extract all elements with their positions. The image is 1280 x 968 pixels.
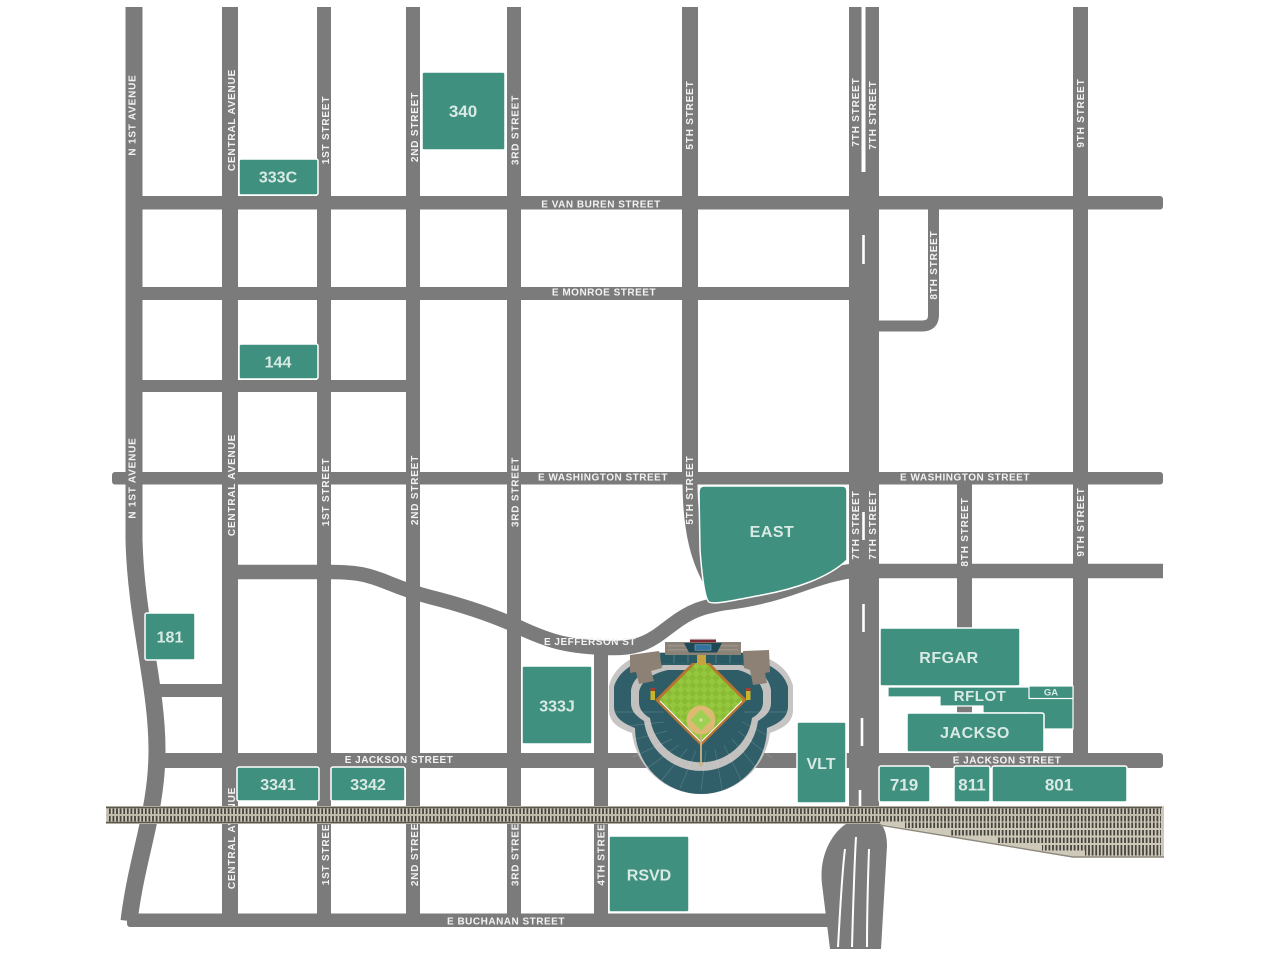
- svg-text:7TH STREET: 7TH STREET: [851, 77, 862, 146]
- svg-text:3RD STREET: 3RD STREET: [511, 95, 522, 165]
- svg-text:340: 340: [449, 102, 477, 121]
- svg-text:7TH STREET: 7TH STREET: [868, 490, 879, 559]
- svg-text:RFGAR: RFGAR: [919, 650, 978, 667]
- svg-text:144: 144: [265, 355, 292, 372]
- svg-text:8TH STREET: 8TH STREET: [960, 497, 971, 566]
- svg-text:E VAN BUREN STREET: E VAN BUREN STREET: [541, 200, 660, 211]
- svg-text:2ND STREET: 2ND STREET: [410, 92, 421, 162]
- svg-text:333J: 333J: [539, 699, 575, 716]
- svg-text:RSVD: RSVD: [627, 868, 671, 885]
- svg-text:2ND STREET: 2ND STREET: [410, 816, 421, 886]
- svg-text:CENTRAL AVENUE: CENTRAL AVENUE: [227, 69, 238, 171]
- svg-text:1ST STREET: 1ST STREET: [321, 96, 332, 165]
- svg-text:GA: GA: [1044, 688, 1058, 699]
- svg-text:7TH STREET: 7TH STREET: [851, 490, 862, 559]
- svg-text:RFLOT: RFLOT: [954, 688, 1007, 705]
- svg-text:333C: 333C: [259, 170, 298, 187]
- svg-text:JACKSO: JACKSO: [940, 725, 1010, 742]
- svg-text:8TH STREET: 8TH STREET: [929, 230, 940, 299]
- svg-text:VLT: VLT: [806, 756, 835, 773]
- svg-text:9TH STREET: 9TH STREET: [1076, 78, 1087, 147]
- svg-text:9TH STREET: 9TH STREET: [1076, 487, 1087, 556]
- svg-text:E WASHINGTON STREET: E WASHINGTON STREET: [538, 473, 668, 484]
- svg-text:E JACKSON STREET: E JACKSON STREET: [345, 755, 454, 766]
- svg-text:181: 181: [157, 630, 184, 647]
- svg-text:3341: 3341: [260, 777, 296, 794]
- svg-text:2ND STREET: 2ND STREET: [410, 455, 421, 525]
- svg-text:7TH STREET: 7TH STREET: [868, 80, 879, 149]
- svg-text:3RD STREET: 3RD STREET: [511, 457, 522, 527]
- svg-text:N 1ST AVENUE: N 1ST AVENUE: [128, 74, 139, 155]
- svg-text:3RD STREET: 3RD STREET: [511, 816, 522, 886]
- svg-text:3342: 3342: [350, 777, 386, 794]
- svg-text:CENTRAL AVENUE: CENTRAL AVENUE: [227, 434, 238, 536]
- svg-text:EAST: EAST: [750, 524, 795, 541]
- svg-text:1ST STREET: 1ST STREET: [321, 817, 332, 886]
- svg-text:801: 801: [1045, 776, 1073, 795]
- svg-text:5TH STREET: 5TH STREET: [685, 80, 696, 149]
- svg-text:E BUCHANAN STREET: E BUCHANAN STREET: [447, 917, 565, 928]
- svg-text:N 1ST AVENUE: N 1ST AVENUE: [128, 437, 139, 518]
- svg-text:4TH STREET: 4TH STREET: [597, 816, 608, 885]
- svg-text:719: 719: [890, 776, 918, 795]
- svg-text:E JACKSON STREET: E JACKSON STREET: [953, 756, 1062, 767]
- svg-text:5TH STREET: 5TH STREET: [685, 455, 696, 524]
- svg-text:E JEFFERSON ST: E JEFFERSON ST: [544, 637, 636, 648]
- svg-text:CENTRAL AVENUE: CENTRAL AVENUE: [227, 787, 238, 889]
- svg-text:E WASHINGTON STREET: E WASHINGTON STREET: [900, 473, 1030, 484]
- svg-text:811: 811: [958, 776, 985, 795]
- svg-text:E MONROE STREET: E MONROE STREET: [552, 288, 656, 299]
- svg-text:1ST STREET: 1ST STREET: [321, 458, 332, 527]
